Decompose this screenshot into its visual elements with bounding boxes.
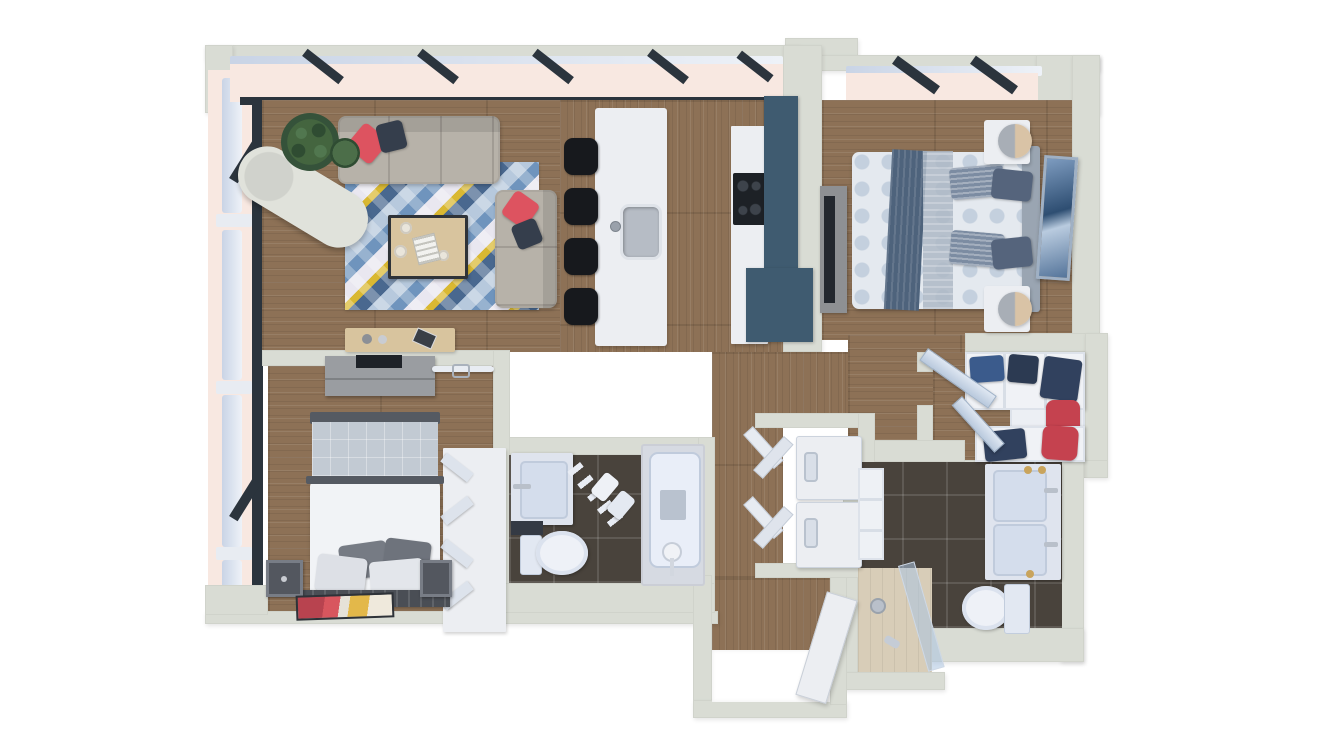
room-master-bathroom (858, 462, 1060, 628)
room-living (262, 100, 562, 350)
room-entry (712, 578, 830, 702)
window-sill-left-1 (216, 214, 252, 227)
wall-right-bedroom (1072, 55, 1100, 352)
window-sill-left-2 (216, 381, 252, 394)
floor-plan (0, 0, 1336, 752)
wall-closet-right (1085, 333, 1108, 478)
room-bathroom (509, 437, 715, 613)
room-master-bedroom (822, 100, 1072, 335)
wall-shower-bottom (843, 672, 945, 690)
window-frame-left-3 (222, 395, 242, 547)
window-frame-left-2 (222, 230, 242, 380)
window-sill-left-3 (216, 547, 252, 560)
room-kitchen (562, 100, 782, 350)
room-walk-in-closet (933, 352, 1085, 462)
room-second-bedroom (268, 366, 493, 611)
wall-corner-bottom-left (205, 585, 268, 615)
